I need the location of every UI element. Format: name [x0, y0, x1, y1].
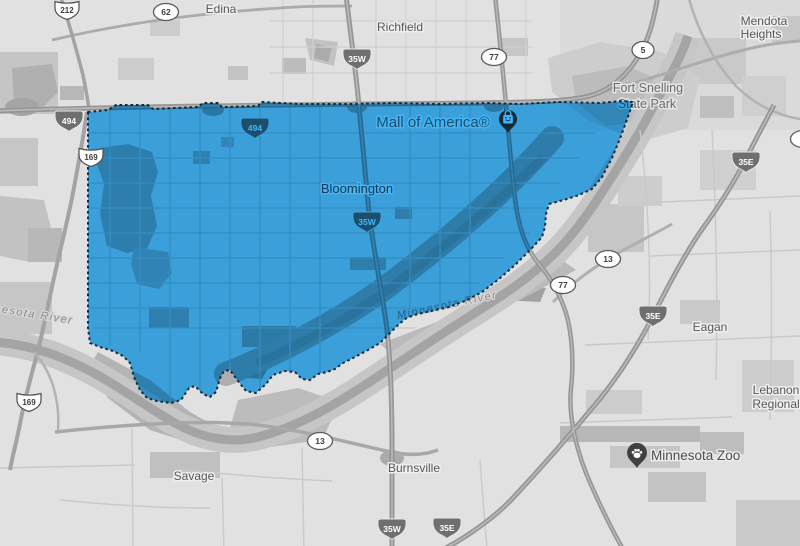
svg-text:35W: 35W — [383, 524, 401, 534]
svg-text:169: 169 — [84, 153, 98, 162]
svg-text:35E: 35E — [738, 157, 753, 167]
label-lebanon-line2: Regional — [752, 397, 799, 411]
label-burnsville: Burnsville — [388, 461, 440, 475]
label-fort-snelling-line1: Fort Snelling — [613, 81, 683, 95]
shield-mn-13-east: 13 — [596, 251, 621, 268]
svg-text:62: 62 — [161, 7, 171, 17]
shield-mn-5: 5 — [632, 42, 654, 59]
shield-mn-13-south: 13 — [308, 433, 333, 450]
label-savage: Savage — [174, 469, 215, 483]
shield-mn-77-south: 77 — [551, 277, 576, 294]
svg-text:35E: 35E — [645, 311, 660, 321]
svg-text:13: 13 — [603, 254, 613, 264]
svg-text:77: 77 — [489, 52, 499, 62]
svg-text:169: 169 — [22, 398, 36, 407]
map-canvas[interactable]: Edina Richfield Mendota Heights Fort Sne… — [0, 0, 800, 546]
shield-mn-77-north: 77 — [482, 49, 507, 66]
svg-text:35E: 35E — [439, 523, 454, 533]
svg-text:35W: 35W — [348, 54, 366, 64]
label-lebanon-line1: Lebanon — [753, 383, 800, 397]
map-svg: Edina Richfield Mendota Heights Fort Sne… — [0, 0, 800, 546]
label-mendota-heights-line1: Mendota — [741, 14, 788, 28]
svg-text:13: 13 — [315, 436, 325, 446]
svg-text:77: 77 — [558, 280, 568, 290]
svg-text:494: 494 — [62, 116, 76, 126]
svg-text:5: 5 — [641, 45, 646, 55]
label-minnesota-zoo: Minnesota Zoo — [651, 448, 740, 463]
shield-mn-62: 62 — [154, 4, 179, 21]
label-edina: Edina — [206, 2, 237, 16]
label-mendota-heights-line2: Heights — [741, 27, 782, 41]
label-eagan: Eagan — [693, 320, 728, 334]
label-richfield: Richfield — [377, 20, 423, 34]
svg-text:212: 212 — [60, 6, 74, 15]
